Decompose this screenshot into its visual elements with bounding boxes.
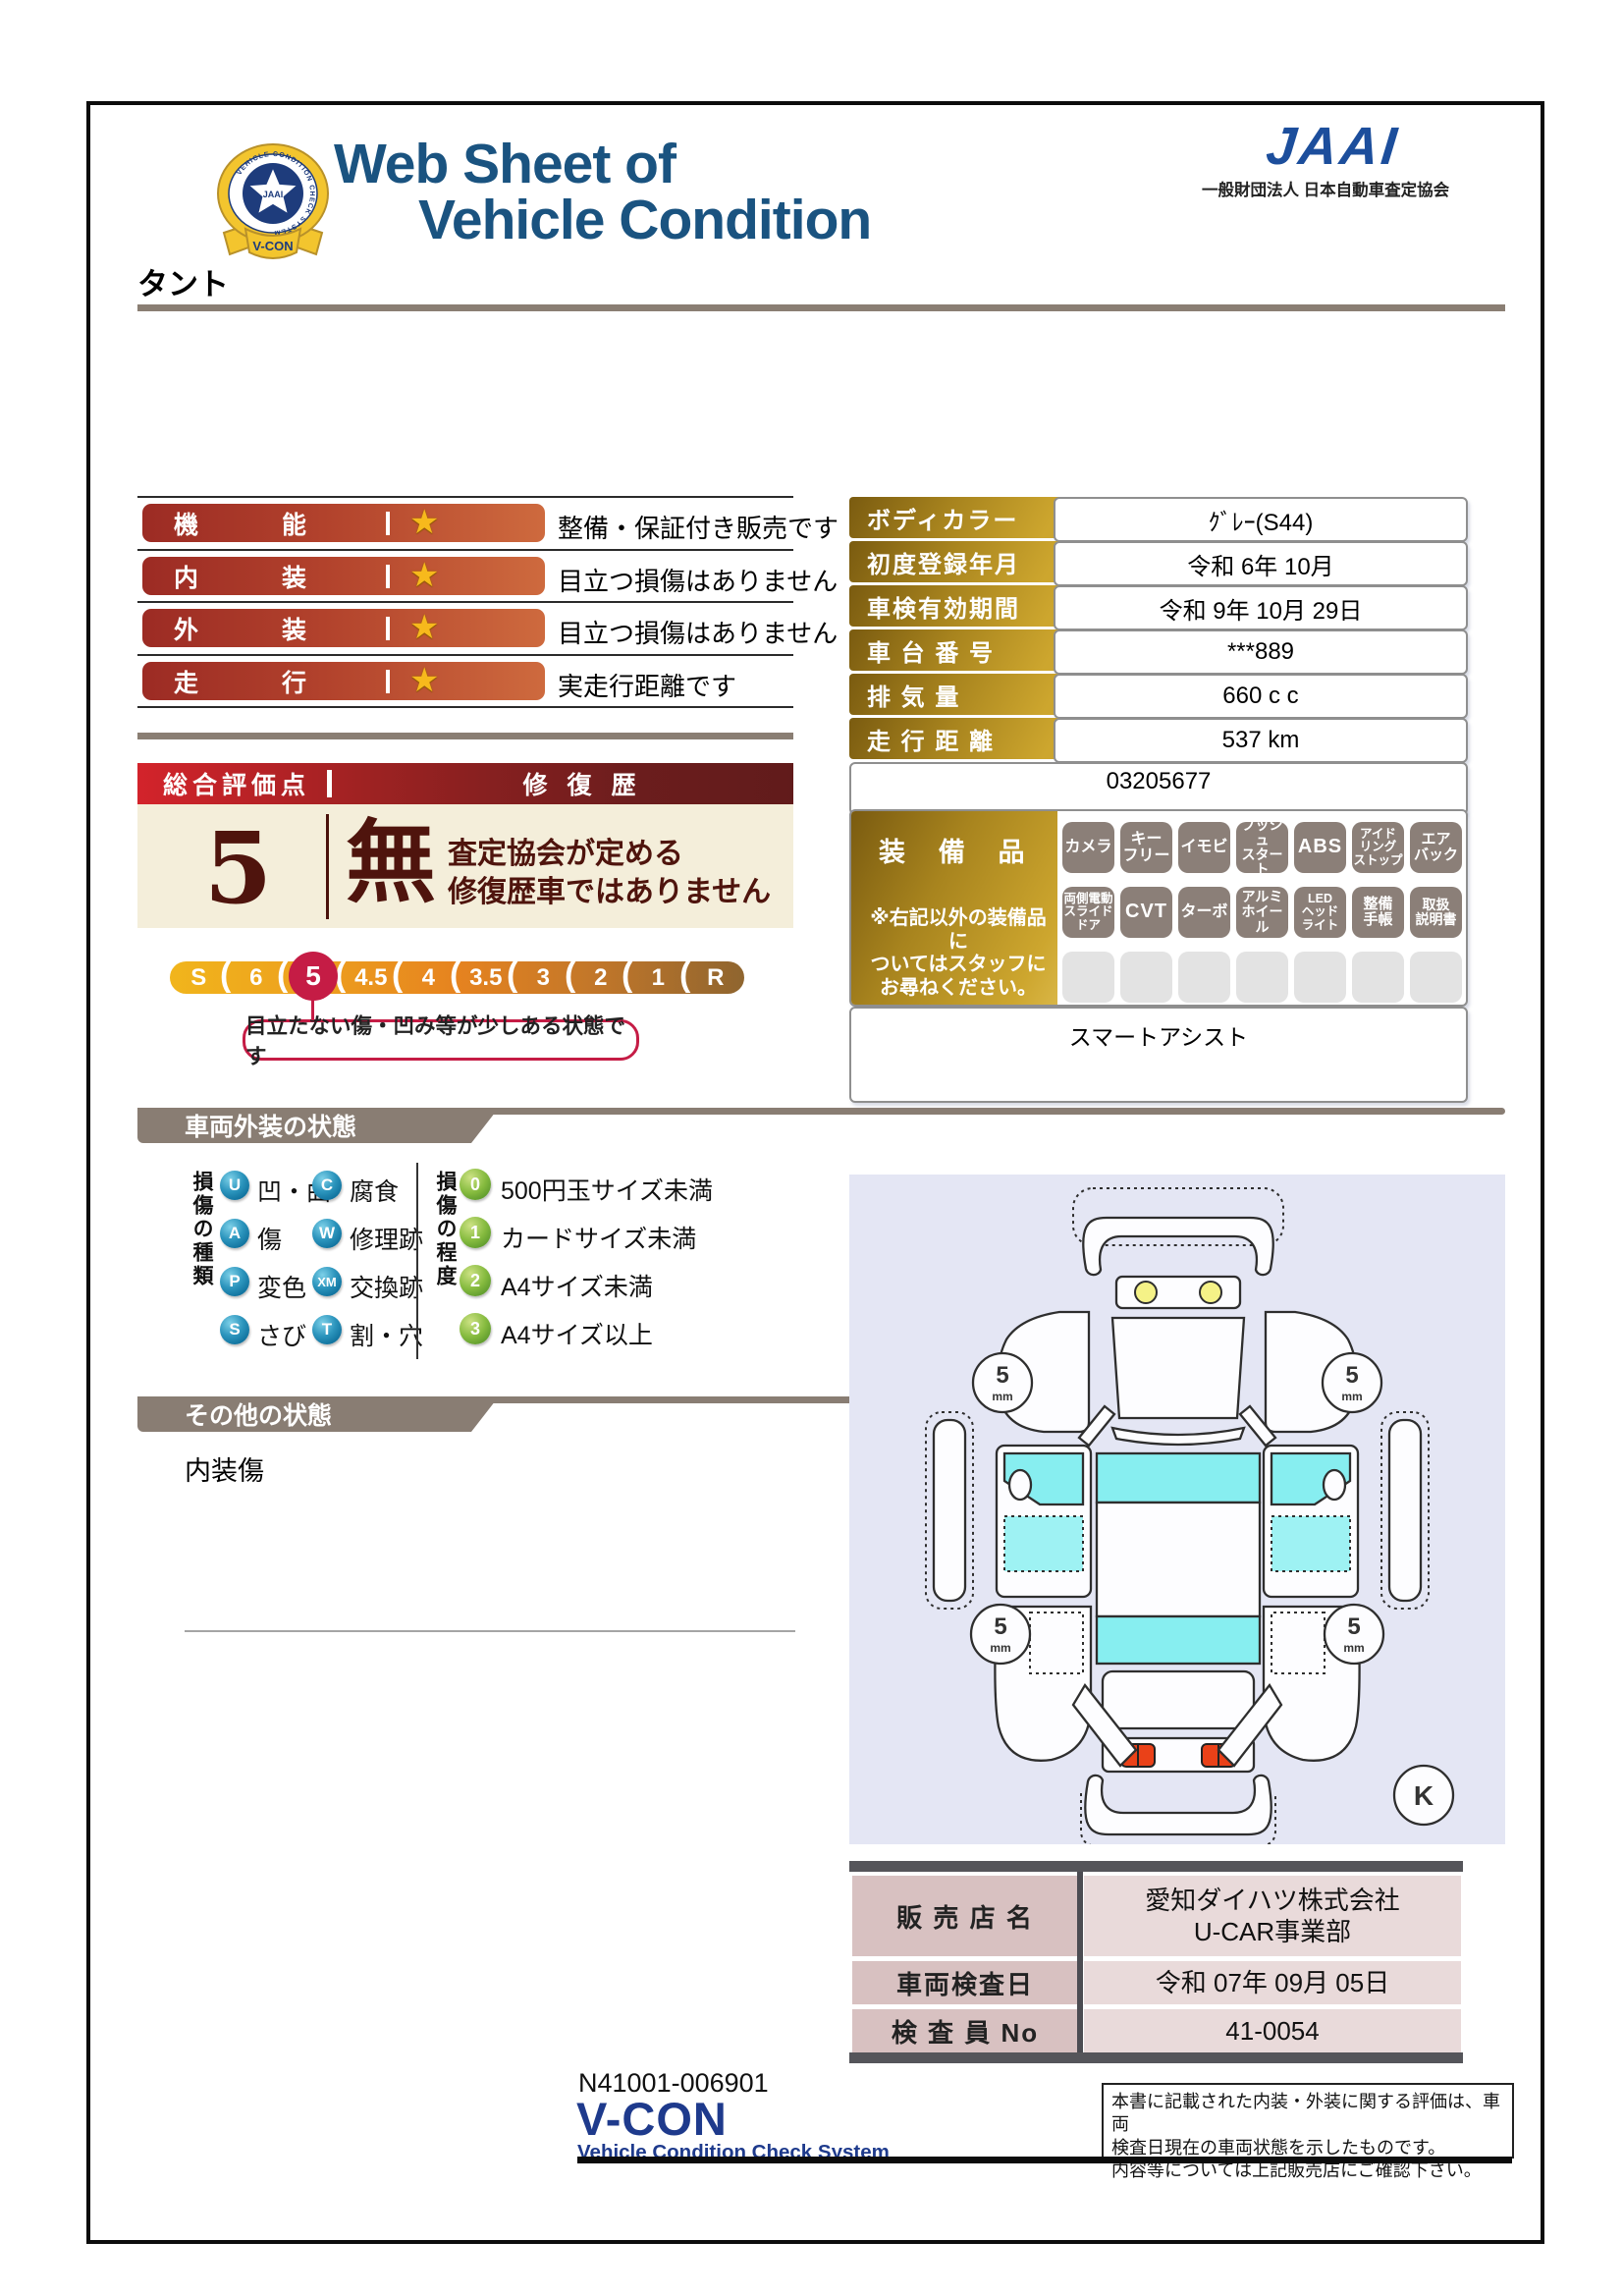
svg-text:5: 5 — [994, 1613, 1006, 1640]
damage-type-S-label: さび — [257, 1317, 306, 1352]
pill-divider-bar — [386, 617, 390, 640]
rating-desc-interior: 目立つ損傷はありません — [558, 562, 838, 598]
star-icon: ★ — [409, 556, 439, 595]
equipment-badge-immobilizer: イモビ — [1178, 822, 1230, 873]
roof-front-glass — [1097, 1453, 1260, 1503]
svg-text:5: 5 — [1345, 1362, 1358, 1389]
inspector-no-value: 41-0054 — [1084, 2009, 1461, 2052]
overall-score-value: 5 — [147, 810, 329, 926]
damage-degree-2-icon: 2 — [460, 1265, 491, 1296]
damage-degree-2-label: A4サイズ未満 — [501, 1268, 653, 1303]
damage-type-W-label: 修理跡 — [350, 1221, 423, 1256]
equipment-badge-cvt: CVT — [1120, 887, 1172, 938]
rating-desc-exterior: 目立つ損傷はありません — [558, 614, 838, 650]
rating-desc-mileage: 実走行距離です — [558, 667, 736, 703]
key-type-mark: K — [1394, 1766, 1453, 1825]
other-condition-note: 内装傷 — [185, 1449, 264, 1488]
footer-rule — [577, 2157, 1512, 2163]
svg-text:mm: mm — [990, 1641, 1010, 1655]
inspection-date-value: 令和 07年 09月 05日 — [1084, 1961, 1461, 2004]
scale-separator: ( — [392, 957, 403, 994]
grade-callout: 目立たない傷・凹み等が少しある状態です — [243, 1019, 639, 1061]
info-value-inspection-validity: 令和 9年 10月 29日 — [1054, 585, 1468, 630]
rating-divider — [137, 496, 793, 498]
scale-separator: ( — [565, 957, 575, 994]
damage-type-C-icon: C — [312, 1171, 342, 1200]
damage-degree-3-label: A4サイズ以上 — [501, 1316, 653, 1351]
equipment-badge-servicebook: 整備 手帳 — [1352, 887, 1404, 938]
pill-divider-bar — [386, 512, 390, 535]
damage-type-P-icon: P — [220, 1267, 249, 1296]
info-label-first-registration: 初度登録年月 — [849, 541, 1066, 582]
header-separator — [137, 304, 1505, 311]
equipment-badge-empty — [1062, 952, 1114, 1003]
equipment-badge-keyfree: キー フリー — [1120, 822, 1172, 873]
star-icon: ★ — [409, 608, 439, 647]
info-label-displacement: 排 気 量 — [849, 674, 1066, 715]
score-header: 総合評価点 修復歴 — [137, 763, 793, 804]
equipment-badge-ledheadlight: LED ヘッド ライト — [1294, 887, 1346, 938]
dealer-table-top-bar — [849, 1861, 1463, 1872]
dealer-name-label: 販 売 店 名 — [852, 1876, 1078, 1956]
info-value-bodycolor: ｸﾞﾚｰ(S44) — [1054, 497, 1468, 542]
headlight-left-icon — [1135, 1282, 1157, 1303]
damage-type-XM-icon: XM — [312, 1267, 342, 1296]
equipment-badge-empty — [1120, 952, 1172, 1003]
badge-ribbon-label: V-CON — [252, 239, 293, 253]
scale-grade-1: 1 — [629, 961, 687, 994]
windshield — [1112, 1318, 1244, 1418]
tire-rear-left: 5 mm — [971, 1605, 1030, 1664]
smart-assist-label: スマートアシスト — [1069, 1018, 1248, 1052]
damage-type-U-icon: U — [220, 1171, 249, 1200]
damage-degree-3-icon: 3 — [460, 1313, 491, 1344]
rear-window — [1097, 1616, 1260, 1664]
info-label-inspection-validity: 車検有効期間 — [849, 585, 1066, 627]
damage-degree-0-icon: 0 — [460, 1169, 491, 1200]
equipment-badge-turbo: ターボ — [1178, 887, 1230, 938]
front-bumper — [1083, 1218, 1273, 1275]
rating-divider — [137, 706, 793, 708]
damage-type-T-icon: T — [312, 1315, 342, 1344]
info-value-mileage: 537 km — [1054, 718, 1468, 763]
damage-type-P-label: 変色 — [257, 1269, 306, 1304]
rating-pill-function: 機能 ★ — [142, 504, 545, 542]
smart-assist-box: スマートアシスト — [849, 1007, 1468, 1103]
tire-front-right: 5 mm — [1323, 1353, 1381, 1412]
rating-label: 機能 — [142, 506, 390, 541]
repair-history-note: 査定協会が定める 修復歴車ではありません — [448, 835, 771, 911]
vehicle-name: タント — [137, 259, 229, 303]
damage-degree-0-label: 500円玉サイズ未満 — [501, 1172, 713, 1207]
equipment-badge-airbag: エア バック — [1410, 822, 1462, 873]
damage-type-XM-label: 交換跡 — [350, 1269, 423, 1304]
rating-pill-interior: 内装 ★ — [142, 557, 545, 595]
scale-grade-R: R — [687, 961, 745, 994]
info-label-mileage: 走 行 距 離 — [849, 718, 1066, 759]
rating-label: 内装 — [142, 559, 390, 594]
rating-label: 走行 — [142, 664, 390, 699]
score-body-divider — [326, 814, 329, 919]
score-header-right: 修復歴 — [383, 766, 795, 801]
info-value-first-registration: 令和 6年 10月 — [1054, 541, 1468, 586]
jaai-logo: JAAI — [1264, 116, 1403, 177]
rating-desc-function: 整備・保証付き販売です — [558, 509, 839, 545]
svg-text:5: 5 — [996, 1362, 1008, 1389]
hood-edge — [1112, 1428, 1244, 1445]
car-damage-diagram: 5 mm 5 mm 5 mm 5 mm K — [849, 1175, 1505, 1844]
other-section-underline — [185, 1630, 795, 1632]
inspection-date-label: 車両検査日 — [852, 1961, 1078, 2004]
pill-divider-bar — [386, 670, 390, 693]
legend-divider — [416, 1163, 418, 1359]
equipment-badge-abs: ABS — [1294, 822, 1346, 873]
equipment-badge-camera: カメラ — [1062, 822, 1114, 873]
pill-divider-bar — [386, 565, 390, 588]
rating-pill-mileage: 走行 ★ — [142, 662, 545, 700]
jaai-org-name: 一般財団法人 日本自動車査定協会 — [1202, 177, 1449, 200]
damage-degree-1-icon: 1 — [460, 1217, 491, 1248]
equipment-badge-manual: 取扱 説明書 — [1410, 887, 1462, 938]
equipment-title: 装備品 — [879, 831, 1057, 869]
equipment-badge-empty — [1294, 952, 1346, 1003]
info-label-bodycolor: ボディカラー — [849, 497, 1066, 538]
damage-type-S-icon: S — [220, 1315, 249, 1344]
rating-pill-exterior: 外装 ★ — [142, 609, 545, 647]
exterior-banner: 車両外装の状態 — [137, 1108, 499, 1143]
vcon-badge-logo: VEHICLE CONDITION CHECK SYSTEM JAAI V-CO… — [214, 142, 332, 272]
svg-text:K: K — [1414, 1780, 1434, 1811]
equipment-badge-empty — [1410, 952, 1462, 1003]
dealer-table-bottom-bar — [849, 2052, 1463, 2063]
rating-divider — [137, 549, 793, 551]
rating-divider — [137, 654, 793, 656]
damage-type-C-label: 腐食 — [350, 1173, 399, 1208]
other-banner: その他の状態 — [137, 1396, 499, 1432]
tailgate — [1103, 1671, 1254, 1728]
equipment-badge-powerslidedoor: 両側電動 スライド ドア — [1062, 887, 1114, 938]
equipment-badge-alloywheel: アルミ ホイール — [1236, 887, 1288, 938]
rating-label: 外装 — [142, 611, 390, 646]
scale-grade-4: 4 — [400, 961, 458, 994]
rear-bumper — [1085, 1776, 1271, 1834]
equipment-badge-grid: カメラ キー フリー イモビ プッシュ スタート ABS アイド リング ストッ… — [1062, 822, 1465, 1003]
headlight-right-icon — [1200, 1282, 1221, 1303]
svg-text:mm: mm — [1343, 1641, 1364, 1655]
svg-text:5: 5 — [1347, 1613, 1360, 1640]
scale-separator: ( — [622, 957, 632, 994]
damage-degree-title: 損傷の程度 — [430, 1171, 460, 1347]
marker-stem — [311, 1000, 314, 1020]
info-label-chassis-number: 車 台 番 号 — [849, 629, 1066, 671]
scale-separator: ( — [450, 957, 460, 994]
svg-text:mm: mm — [1341, 1390, 1362, 1403]
scale-separator: ( — [220, 957, 231, 994]
equipment-badge-empty — [1352, 952, 1404, 1003]
scale-grade-3: 3 — [514, 961, 572, 994]
scale-separator: ( — [507, 957, 517, 994]
inspector-no-label: 検 査 員 No — [852, 2009, 1078, 2052]
dealer-name-value: 愛知ダイハツ株式会社 U-CAR事業部 — [1084, 1876, 1461, 1956]
equipment-gold-pane: 装備品 ※右記以外の装備品に ついてはスタッフに お尋ねください。 — [851, 811, 1057, 1005]
equipment-badge-empty — [1178, 952, 1230, 1003]
tire-front-left: 5 mm — [973, 1353, 1032, 1412]
reference-number-box: 03205677 — [849, 762, 1468, 815]
damage-type-A-icon: A — [220, 1219, 249, 1248]
star-icon: ★ — [409, 503, 439, 542]
info-value-chassis-number: ***889 — [1054, 629, 1468, 675]
roof-panel — [1097, 1503, 1260, 1616]
equipment-badge-idlingstop: アイド リング ストップ — [1352, 822, 1404, 873]
score-header-divider — [327, 770, 332, 797]
sheet-title-line2: Vehicle Condition — [418, 188, 871, 252]
score-header-left: 総合評価点 — [137, 766, 310, 801]
rating-divider — [137, 601, 793, 603]
badge-star-label: JAAI — [263, 190, 284, 199]
damage-degree-1-label: カードサイズ未満 — [501, 1220, 696, 1255]
scale-separator: ( — [679, 957, 690, 994]
damage-type-A-label: 傷 — [257, 1221, 282, 1256]
equipment-badge-empty — [1236, 952, 1288, 1003]
info-value-displacement: 660 c c — [1054, 674, 1468, 719]
dealer-table-divider — [1077, 1872, 1083, 2052]
damage-type-title: 損傷の種類 — [187, 1171, 216, 1347]
scale-separator: ( — [277, 957, 288, 994]
selected-grade-marker: 5 — [289, 952, 338, 1001]
svg-text:mm: mm — [992, 1390, 1012, 1403]
equipment-badge-pushstart: プッシュ スタート — [1236, 822, 1288, 873]
vcon-wordmark: V-CON — [576, 2092, 728, 2146]
scale-grade-S: S — [170, 961, 228, 994]
equipment-note: ※右記以外の装備品に ついてはスタッフに お尋ねください。 — [861, 907, 1055, 1000]
damage-type-W-icon: W — [312, 1219, 342, 1248]
disclaimer-box: 本書に記載された内装・外装に関する評価は、車両 検査日現在の車両状態を示したもの… — [1102, 2083, 1514, 2159]
star-icon: ★ — [409, 661, 439, 700]
tire-rear-right: 5 mm — [1325, 1605, 1383, 1664]
left-separator-2 — [137, 733, 793, 739]
reference-number: 03205677 — [1107, 768, 1212, 795]
vehicle-condition-sheet: VEHICLE CONDITION CHECK SYSTEM JAAI V-CO… — [0, 0, 1623, 2296]
damage-type-T-label: 割・穴 — [350, 1317, 423, 1352]
repair-history-value: 無 — [346, 817, 436, 907]
